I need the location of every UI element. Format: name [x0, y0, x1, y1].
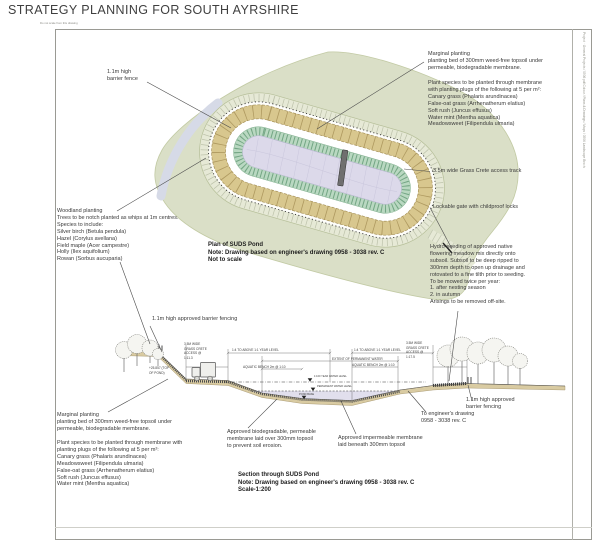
plan-hydroseeding-note: Hydro-seeding of approved native floweri…: [430, 244, 525, 306]
maintenance-truck: [192, 363, 216, 381]
no-scale-note: Do not scale from this drawing: [40, 21, 78, 25]
plan-barrier-fence-label: 1.1m high barrier fence: [107, 69, 138, 83]
section-marginal-planting-note: Marginal planting planting bed of 300mm …: [57, 412, 172, 433]
sheet-margin-note: Project · General Projects / 0506 pdf Co…: [582, 32, 586, 168]
dim-top-of-pond: +25.857 (TOP OF POND): [149, 366, 169, 375]
section-caption-note: Note: Drawing based on engineer's drawin…: [238, 480, 414, 486]
label-pond-base: POND BASE: [299, 393, 314, 396]
section-fencing-left-label: 1.1m high approved barrier fencing: [152, 316, 237, 323]
label-100yr-water-level: 1:100 YEAR WATER LEVEL: [314, 375, 347, 378]
plan-woodland-planting-note: Woodland planting Trees to be notch plan…: [57, 208, 178, 263]
plan-plant-species-note: Plant species to be planted through memb…: [428, 80, 542, 128]
section-caption: Section through SUDS Pond Note: Drawing …: [238, 472, 414, 495]
dim-extent-permanent-water: EXTENT OF PERMANENT WATER: [332, 357, 383, 362]
plan-access-track-label: 3.5m wide Grass Crete access track: [433, 168, 521, 175]
section-permeable-membrane-note: Approved biodegradable, permeable membra…: [227, 429, 316, 450]
dim-aquatic-bench-left: AQUATIC BENCH 2m @ 1:10: [243, 365, 286, 370]
section-fencing-right-label: 1.1m high approved barrier fencing: [466, 397, 515, 411]
dim-track-right: 3.5M WIDE GRASS CRETE ACCESS @ 1:17.5: [406, 341, 429, 359]
drawing-sheet: { "page": { "title": "STRATEGY PLANNING …: [0, 0, 600, 552]
plan-caption-title: Plan of SUDS Pond: [208, 242, 263, 248]
dim-aquatic-bench-right: AQUATIC BENCH 2m @ 1:10: [352, 363, 395, 368]
section-caption-title: Section through SUDS Pond: [238, 472, 319, 478]
page-title: STRATEGY PLANNING FOR SOUTH AYRSHIRE: [8, 3, 299, 17]
plan-caption: Plan of SUDS Pond Note: Drawing based on…: [208, 242, 384, 265]
dim-track-left: 3.5M WIDE GRASS CRETE ACCESS @ 1:11.3: [184, 342, 207, 360]
section-caption-scale: Scale-1:200: [238, 487, 271, 493]
plan-caption-scale: Not to scale: [208, 257, 242, 263]
plan-caption-note: Note: Drawing based on engineer's drawin…: [208, 250, 384, 256]
dim-year-level-right: 1:4 TO ABOVE 1:1 YEAR LEVEL: [354, 348, 401, 353]
label-permanent-water-level: PERMANENT WATER LEVEL: [317, 385, 352, 388]
section-impermeable-membrane-note: Approved impermeable membrane laid benea…: [338, 435, 423, 449]
section-plant-species-note: Plant species to be planted through memb…: [57, 440, 182, 488]
section-engineer-reference: To engineer's drawing 0958 - 3038 rev. C: [421, 411, 474, 425]
dim-year-level-left: 1:4 TO ABOVE 1:1 YEAR LEVEL: [232, 348, 279, 353]
plan-gate-label: Lockable gate with childproof locks: [433, 204, 518, 211]
plan-marginal-planting-note: Marginal planting planting bed of 300mm …: [428, 51, 543, 72]
woodland-trees-right: [437, 337, 528, 369]
